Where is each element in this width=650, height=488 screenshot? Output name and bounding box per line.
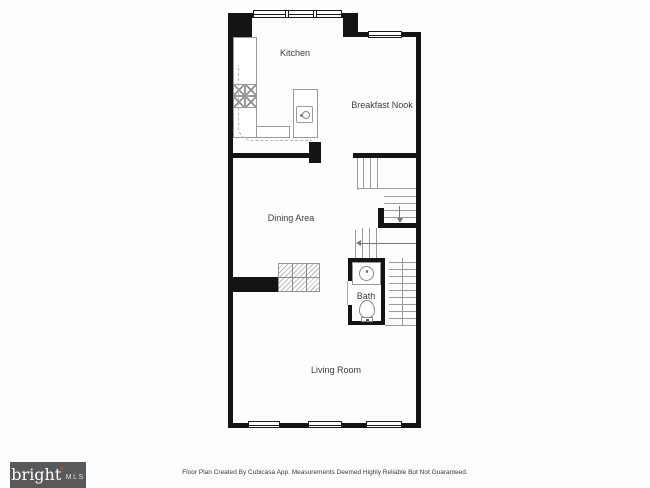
disclaimer-text: Floor Plan Created By Cubicasa App. Meas…	[0, 469, 650, 476]
wall-right	[416, 32, 421, 428]
window-breakfast-nook	[368, 31, 402, 38]
dining-area-label: Dining Area	[268, 213, 315, 223]
hatched-area	[278, 263, 320, 292]
bath-label: Bath	[357, 291, 376, 301]
window-kitchen-top	[253, 10, 342, 18]
wall-divider-stub	[309, 142, 321, 163]
window-living-room-2	[308, 421, 342, 428]
wall-kitchen-dining-divider	[228, 153, 310, 158]
kitchen-label: Kitchen	[280, 48, 310, 58]
stair-tread	[389, 290, 416, 291]
stair-tread	[389, 311, 416, 312]
stair-edge	[357, 158, 358, 190]
stair-direction-line	[361, 243, 416, 244]
stair-tread	[389, 269, 416, 270]
wall-stair-landing	[378, 223, 421, 228]
stair-left-arrow-icon	[356, 240, 361, 246]
stair-tread	[389, 276, 416, 277]
stair-edge	[385, 325, 416, 326]
stair-tread	[357, 188, 416, 189]
window-mullion	[313, 11, 317, 17]
stair-tread	[384, 196, 416, 197]
window-living-room-1	[248, 421, 280, 428]
wall-stair-stub	[378, 208, 384, 228]
stair-tread	[389, 304, 416, 305]
toilet-tank	[361, 317, 373, 322]
wall-top-left-corner	[228, 13, 252, 37]
stair-tread	[363, 158, 364, 188]
bath-sink-icon	[359, 266, 374, 281]
breakfast-nook-label: Breakfast Nook	[351, 100, 413, 110]
stair-tread	[389, 297, 416, 298]
stair-tread	[370, 158, 371, 188]
wall-dining-stub	[233, 277, 278, 292]
island-sink-icon	[296, 106, 313, 123]
stair-tread	[384, 210, 416, 211]
stair-tread	[389, 262, 416, 263]
stair-down-arrow-icon	[397, 218, 403, 223]
stair-tread	[389, 283, 416, 284]
stair-tread	[389, 318, 416, 319]
window-living-room-3	[366, 421, 402, 428]
stair-tread	[384, 203, 416, 204]
stair-tread	[377, 158, 378, 188]
floorplan-image: Kitchen Breakfast Nook Dining Area Bath …	[0, 0, 650, 488]
living-room-label: Living Room	[311, 365, 361, 375]
toilet-icon	[359, 300, 375, 318]
window-mullion	[285, 11, 289, 17]
